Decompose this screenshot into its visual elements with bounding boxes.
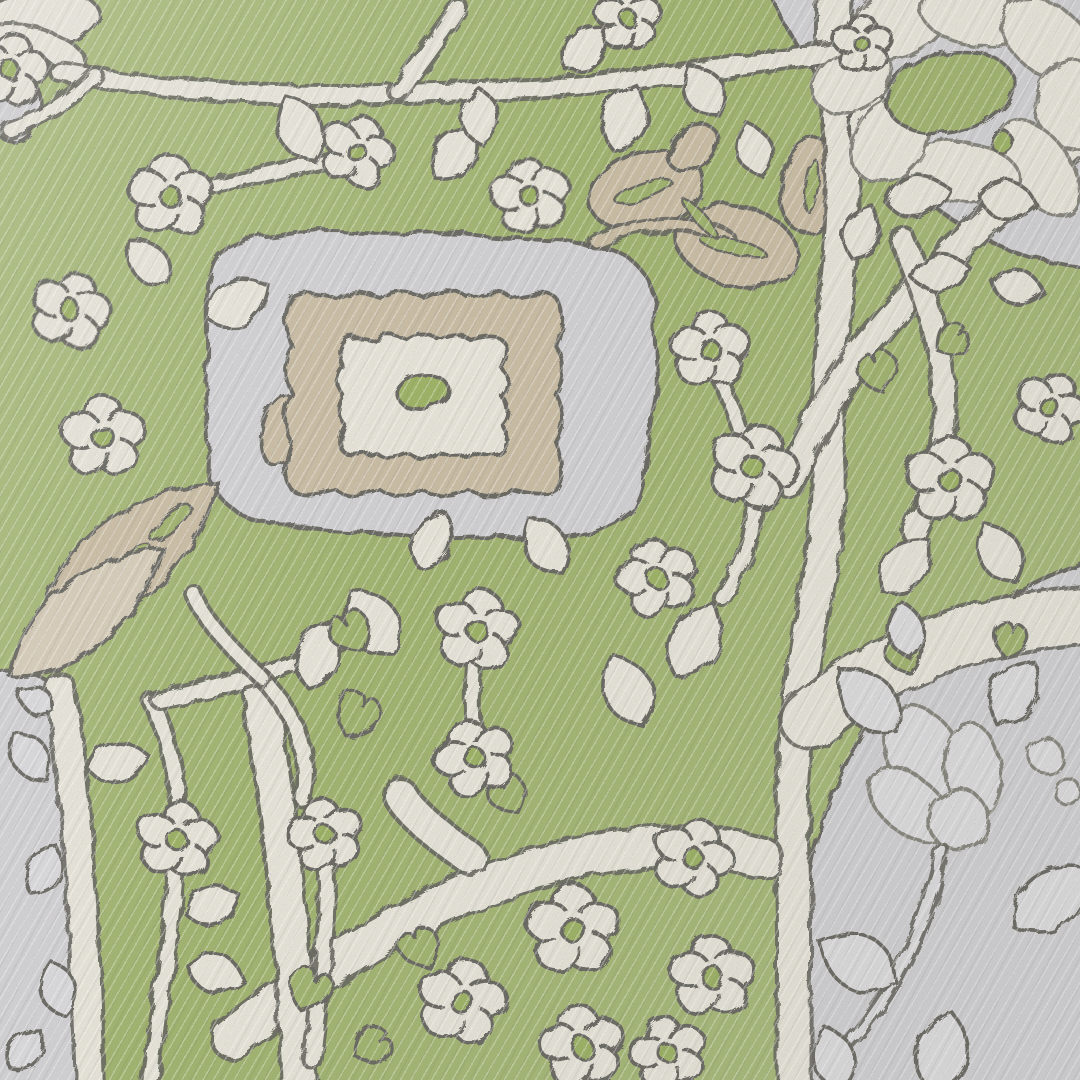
rug-pattern-svg [0, 0, 1080, 1080]
fabric-grain [0, 0, 1080, 1080]
rug-photo [0, 0, 1080, 1080]
